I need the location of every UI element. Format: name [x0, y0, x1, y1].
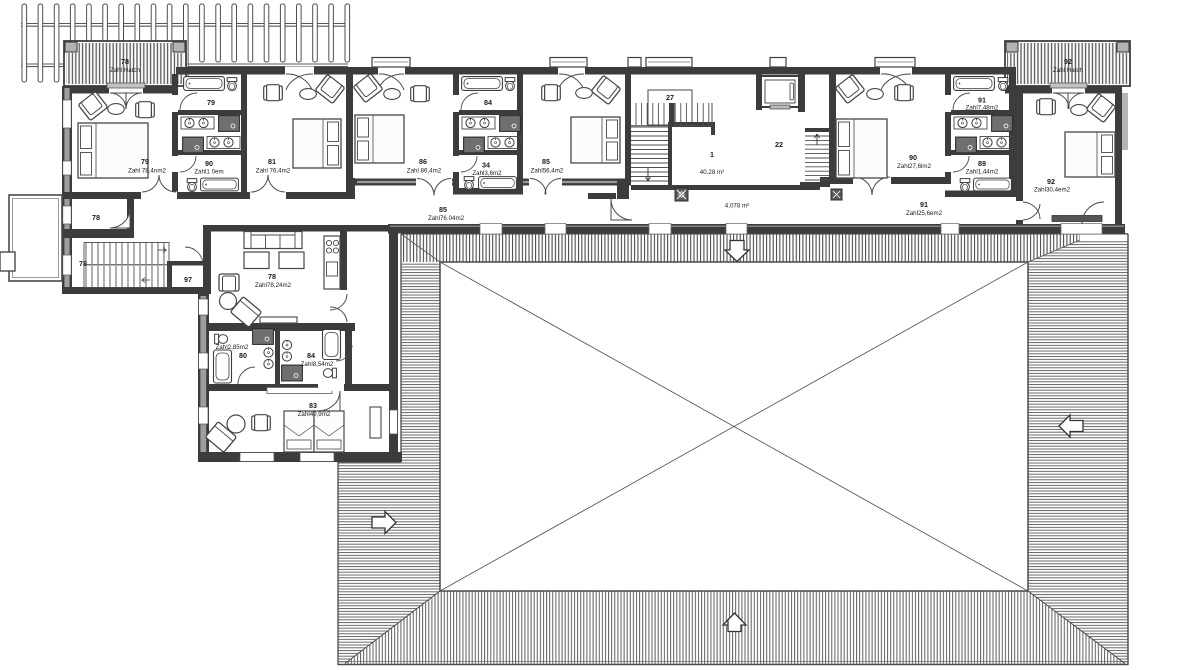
svg-text:Zahl 86,4m2: Zahl 86,4m2: [407, 168, 442, 175]
svg-text:4,078 m²: 4,078 m²: [725, 203, 749, 210]
svg-text:Zahl30,4em2: Zahl30,4em2: [1034, 187, 1071, 194]
svg-text:86: 86: [419, 157, 427, 166]
svg-text:89: 89: [978, 159, 986, 168]
svg-text:78: 78: [79, 259, 87, 268]
svg-text:Zahl Hatch: Zahl Hatch: [110, 67, 140, 74]
svg-text:84: 84: [484, 98, 492, 107]
svg-text:78: 78: [268, 272, 276, 281]
svg-text:1: 1: [710, 150, 714, 159]
svg-text:Zahl56,4m2: Zahl56,4m2: [531, 168, 564, 175]
svg-text:80: 80: [239, 351, 247, 360]
svg-text:79: 79: [207, 98, 215, 107]
svg-text:90: 90: [205, 159, 213, 168]
svg-text:83: 83: [309, 401, 317, 410]
svg-text:84: 84: [307, 351, 315, 360]
svg-text:Zahl8,54m2: Zahl8,54m2: [301, 361, 334, 368]
svg-text:85: 85: [542, 157, 550, 166]
svg-text:Zahl1,44m2: Zahl1,44m2: [966, 169, 999, 176]
svg-text:91: 91: [920, 200, 928, 209]
svg-text:Zahl3,6m2: Zahl3,6m2: [472, 170, 502, 177]
svg-text:Zahl25,6em2: Zahl25,6em2: [906, 210, 943, 217]
svg-text:Zahl 78,4nm2: Zahl 78,4nm2: [128, 168, 166, 175]
svg-text:Zahl7,48m2: Zahl7,48m2: [966, 104, 999, 111]
svg-text:34: 34: [482, 161, 490, 170]
svg-text:92: 92: [1064, 57, 1072, 66]
svg-text:Zahl78,24m2: Zahl78,24m2: [255, 282, 292, 289]
svg-text:Zahl 76,4m2: Zahl 76,4m2: [256, 168, 291, 175]
svg-text:78: 78: [92, 213, 100, 222]
svg-text:Zahl76.04m2: Zahl76.04m2: [428, 215, 465, 222]
svg-text:81: 81: [268, 157, 276, 166]
svg-text:Zahl40,9m2: Zahl40,9m2: [298, 411, 331, 418]
svg-text:40.28 m²: 40.28 m²: [700, 169, 724, 176]
svg-text:79: 79: [141, 157, 149, 166]
svg-text:27: 27: [666, 93, 674, 102]
svg-text:85: 85: [439, 205, 447, 214]
svg-text:92: 92: [1047, 177, 1055, 186]
svg-text:97: 97: [184, 275, 192, 284]
svg-text:Zahl27,6lm2: Zahl27,6lm2: [897, 163, 932, 170]
svg-text:91: 91: [978, 96, 986, 105]
svg-text:Zahl1 0em: Zahl1 0em: [194, 169, 223, 176]
svg-text:78: 78: [121, 57, 129, 66]
svg-text:Zahl Hatch: Zahl Hatch: [1053, 67, 1083, 74]
svg-text:Zahl2,85m2: Zahl2,85m2: [216, 344, 249, 351]
svg-text:22: 22: [775, 140, 783, 149]
svg-text:90: 90: [909, 153, 917, 162]
